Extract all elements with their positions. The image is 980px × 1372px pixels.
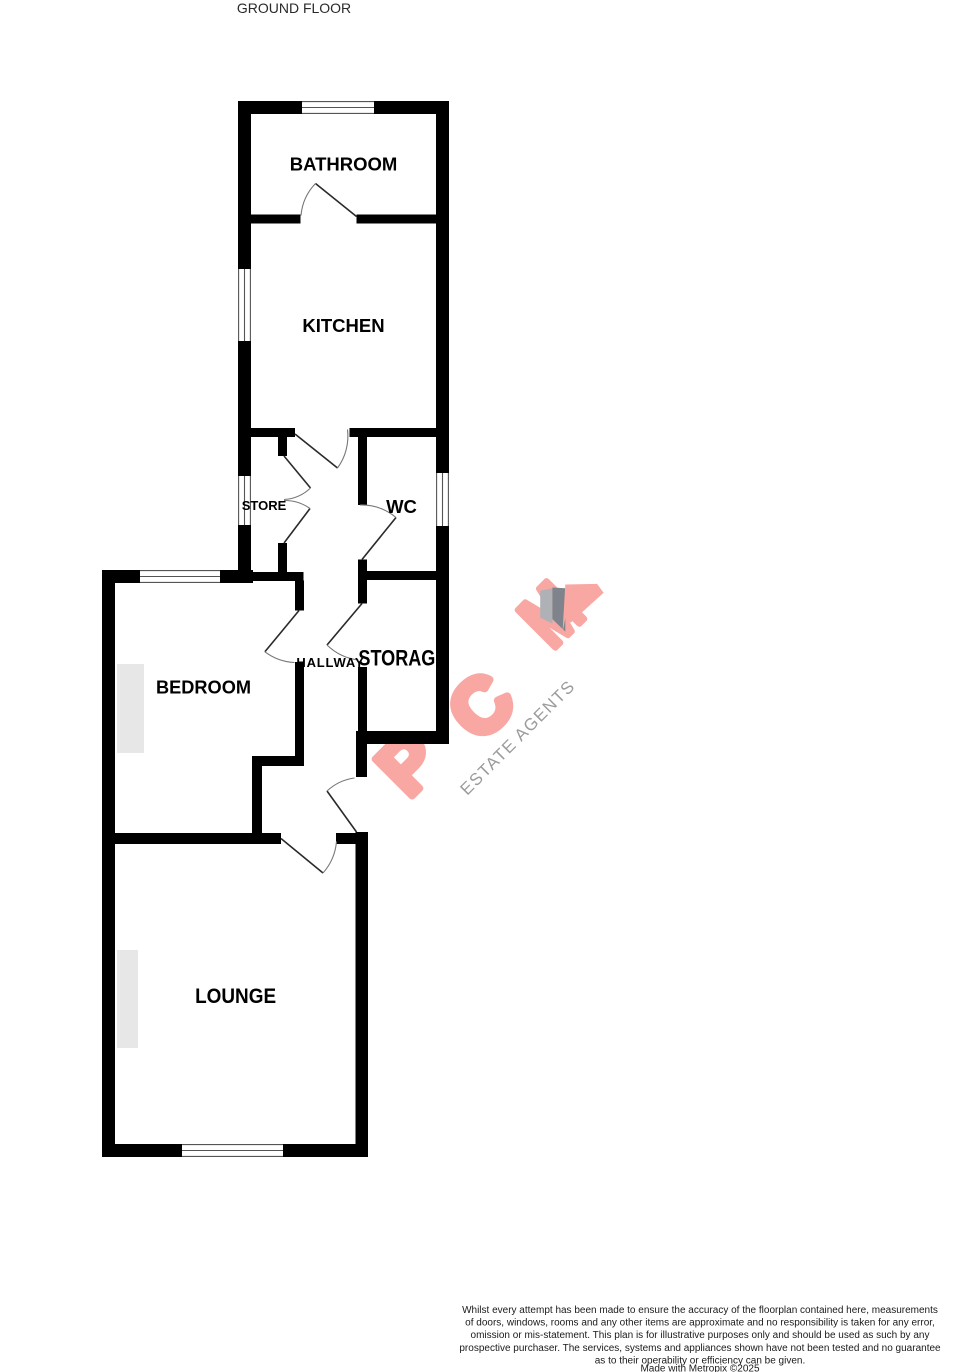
svg-text:WC: WC [386,496,417,517]
svg-text:BATHROOM: BATHROOM [290,154,398,175]
svg-text:HALLWAY: HALLWAY [296,655,364,670]
svg-text:Made with Metropix ©2025: Made with Metropix ©2025 [640,1364,760,1372]
svg-text:STORAGE: STORAGE [358,645,447,670]
svg-text:omission or mis-statement. Thi: omission or mis-statement. This plan is … [471,1330,930,1341]
svg-text:STORE: STORE [242,498,287,513]
svg-text:KITCHEN: KITCHEN [302,315,384,336]
svg-text:GROUND FLOOR: GROUND FLOOR [237,0,351,16]
svg-text:Whilst every attempt has been: Whilst every attempt has been made to en… [462,1305,938,1316]
svg-text:BEDROOM: BEDROOM [156,678,251,698]
svg-text:prospective purchaser. The ser: prospective purchaser. The services, sys… [459,1343,941,1354]
svg-text:LOUNGE: LOUNGE [195,985,276,1008]
svg-text:of doors, windows, rooms and a: of doors, windows, rooms and any other i… [465,1318,935,1329]
